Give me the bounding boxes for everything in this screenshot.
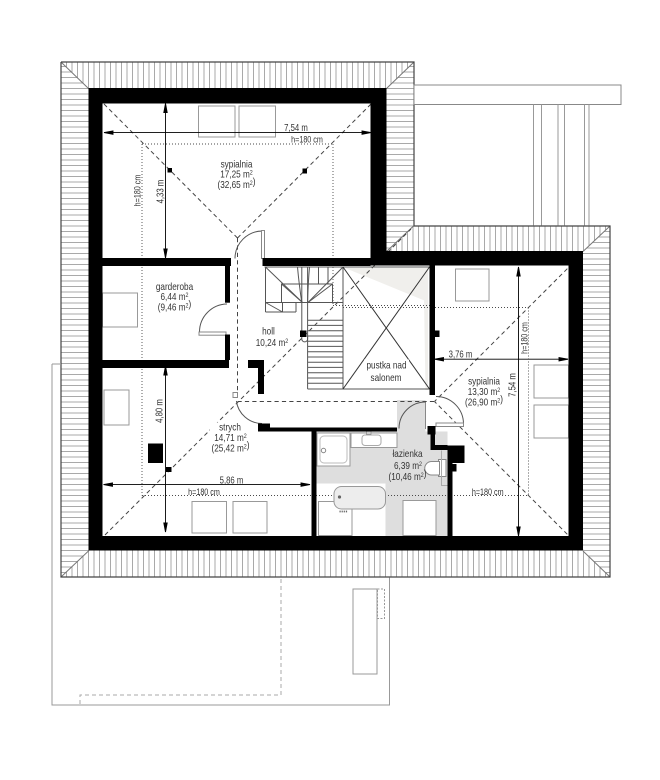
svg-text:holl: holl	[262, 326, 275, 337]
svg-text:3,76 m: 3,76 m	[449, 348, 473, 359]
svg-text:garderoba: garderoba	[156, 281, 194, 292]
svg-text:6,44 m2: 6,44 m2	[161, 291, 189, 302]
svg-text:łazienka: łazienka	[392, 448, 423, 459]
svg-text:h=180 cm: h=180 cm	[133, 174, 143, 206]
svg-text:6,39 m2: 6,39 m2	[394, 460, 422, 471]
svg-text:5,86 m: 5,86 m	[220, 474, 244, 485]
svg-text:17,25 m2: 17,25 m2	[220, 169, 253, 180]
svg-text:h=180 cm: h=180 cm	[188, 487, 220, 497]
svg-text:4,33 m: 4,33 m	[154, 180, 165, 204]
svg-text:h=180 cm: h=180 cm	[520, 322, 530, 354]
svg-text:salonem: salonem	[371, 372, 402, 383]
svg-text:sypialnia: sypialnia	[468, 376, 501, 387]
svg-text:strych: strych	[219, 422, 241, 433]
svg-text:h=180 cm: h=180 cm	[291, 135, 323, 145]
svg-text:7,54 m: 7,54 m	[506, 373, 517, 397]
svg-text:sypialnia: sypialnia	[221, 159, 254, 170]
svg-text:4,80 m: 4,80 m	[153, 399, 164, 423]
svg-text:h=180 cm: h=180 cm	[472, 487, 504, 497]
svg-text:pustka nad: pustka nad	[366, 360, 406, 371]
svg-text:14,71 m2: 14,71 m2	[214, 432, 247, 443]
svg-text:10,24 m2: 10,24 m2	[256, 337, 289, 348]
svg-text:7,54 m: 7,54 m	[284, 122, 308, 133]
svg-text:13,30 m2: 13,30 m2	[468, 386, 501, 397]
